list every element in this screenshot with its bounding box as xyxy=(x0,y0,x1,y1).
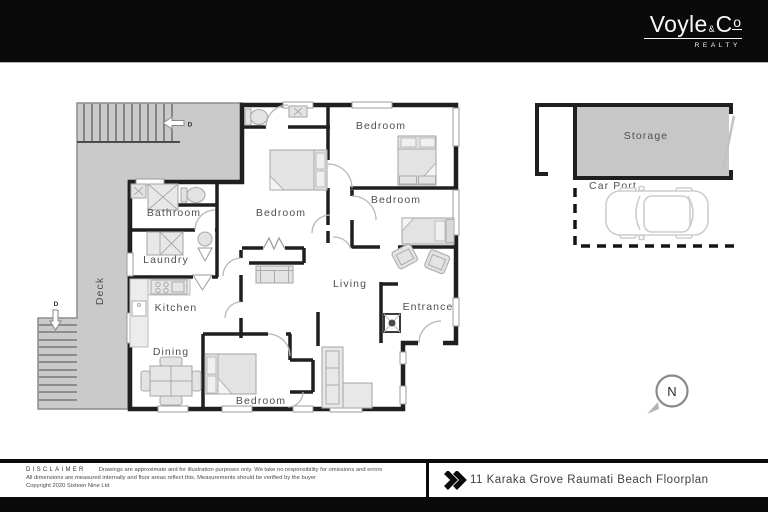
chaise-sofa-icon xyxy=(322,347,372,408)
room-label-entrance: Entrance xyxy=(403,301,454,313)
toilet-icon xyxy=(245,109,268,125)
dining-table-icon xyxy=(141,357,201,405)
disclaimer-text-3: Copyright 2020 Sixteen Nine Ltd xyxy=(26,483,406,491)
room-label-storage: Storage xyxy=(624,130,668,142)
chair-icon xyxy=(160,396,182,405)
room-label-kitchen: Kitchen xyxy=(155,302,198,314)
disclaimer-text-1: Drawings are approximate and for illustr… xyxy=(99,467,383,473)
carport-block: Car Port xyxy=(575,180,737,246)
stove-icon xyxy=(151,280,187,294)
stair-marker-top: D xyxy=(188,122,193,129)
kitchen-sink-icon xyxy=(132,301,146,316)
disclaimer-line-1: DISCLAIMERDrawings are approximate and f… xyxy=(26,467,406,475)
room-label-bedroom-mid: Bedroom xyxy=(256,207,306,219)
footer-divider xyxy=(426,463,429,497)
double-bed-icon xyxy=(205,354,256,394)
chair-icon xyxy=(160,357,182,366)
chair-icon xyxy=(141,371,150,391)
disclaimer: DISCLAIMERDrawings are approximate and f… xyxy=(26,467,406,490)
single-bed-icon xyxy=(402,218,454,244)
room-label-laundry: Laundry xyxy=(143,254,189,266)
opening-notch-icon xyxy=(193,275,212,290)
room-label-dining: Dining xyxy=(153,346,189,358)
stair-marker-bottom: D xyxy=(54,301,59,308)
floorplan-canvas: D D Deck xyxy=(0,0,768,512)
fireplace-icon xyxy=(384,314,400,332)
bathroom-sink-icon xyxy=(131,184,146,198)
room-label-bedroom-right: Bedroom xyxy=(371,194,421,206)
armchair-icon xyxy=(424,249,451,274)
sofa-icon xyxy=(256,266,293,283)
toilet-icon xyxy=(181,188,205,203)
double-chevron-icon xyxy=(443,471,469,491)
room-label-bedroom-bottom: Bedroom xyxy=(236,395,286,407)
laundry-tub-icon xyxy=(198,232,212,246)
front-door-gap xyxy=(418,340,443,347)
compass-north-label: N xyxy=(667,384,676,399)
washing-machine-icon xyxy=(147,232,183,255)
room-label-living: Living xyxy=(333,278,367,290)
page: Voyle&Co REALTY D xyxy=(0,0,768,512)
north-compass-icon: N xyxy=(647,376,688,415)
room-label-bedroom-top: Bedroom xyxy=(356,120,406,132)
room-label-deck: Deck xyxy=(94,277,106,305)
double-bed-icon xyxy=(270,150,327,190)
plan-title: 11 Karaka Grove Raumati Beach Floorplan xyxy=(470,463,709,497)
storage-block: Storage xyxy=(537,103,734,178)
disclaimer-text-2: All dimensions are measured internally a… xyxy=(26,475,406,483)
cased-opening-zigzag-icon xyxy=(263,238,285,249)
double-bed-icon xyxy=(398,136,436,185)
opening-notch-icon xyxy=(198,248,212,261)
disclaimer-heading: DISCLAIMER xyxy=(26,467,86,473)
footer-bottom-bar xyxy=(0,497,768,512)
chair-icon xyxy=(192,371,201,391)
room-label-bathroom: Bathroom xyxy=(147,207,201,219)
car-icon xyxy=(606,187,708,240)
